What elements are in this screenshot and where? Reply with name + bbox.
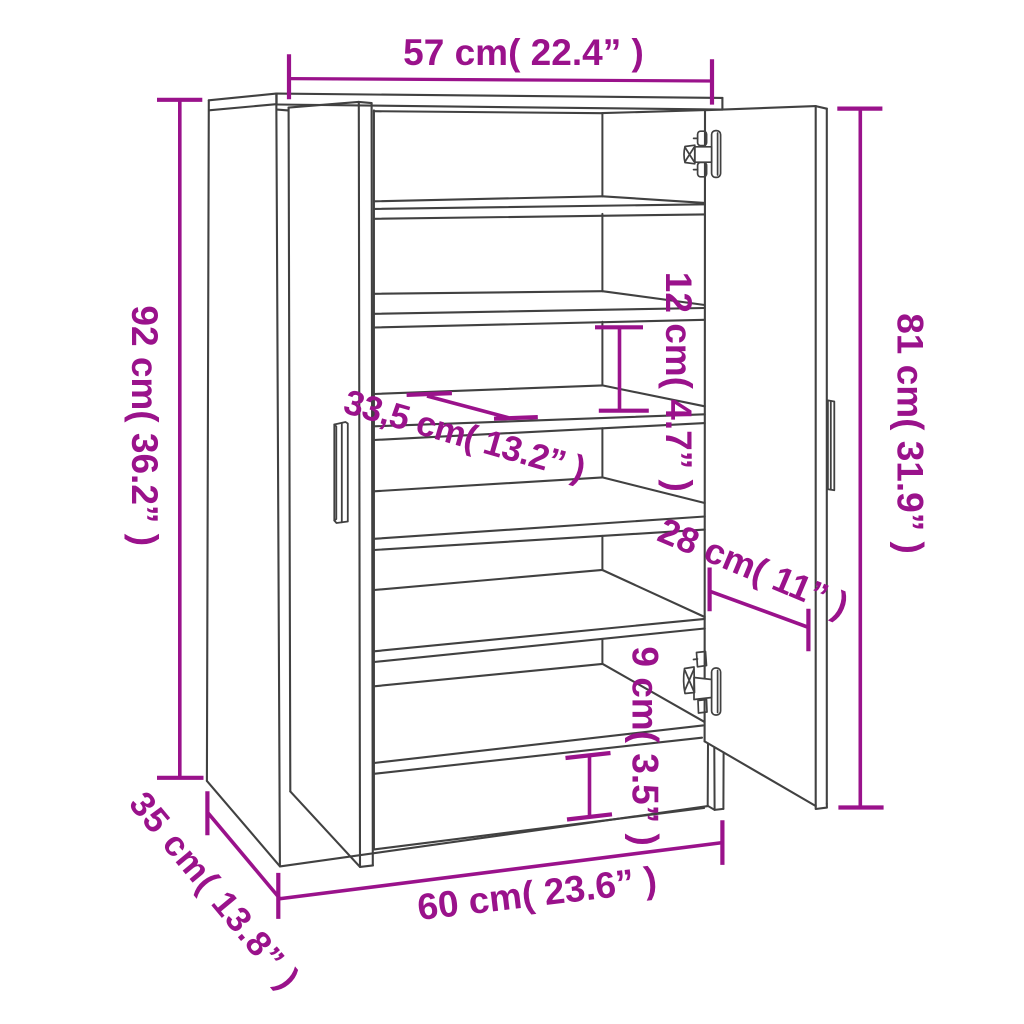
svg-text:57 cm( 22.4” ): 57 cm( 22.4” ) (403, 32, 644, 73)
svg-text:33,5 cm( 13.2” ): 33,5 cm( 13.2” ) (340, 382, 590, 488)
svg-text:92 cm( 36.2” ): 92 cm( 36.2” ) (124, 305, 165, 546)
svg-text:60 cm( 23.6” ): 60 cm( 23.6” ) (415, 859, 659, 928)
svg-text:9 cm( 3.5” ): 9 cm( 3.5” ) (625, 646, 666, 845)
svg-text:12 cm( 4.7” ): 12 cm( 4.7” ) (658, 272, 699, 492)
svg-text:81 cm( 31.9” ): 81 cm( 31.9” ) (890, 313, 931, 554)
